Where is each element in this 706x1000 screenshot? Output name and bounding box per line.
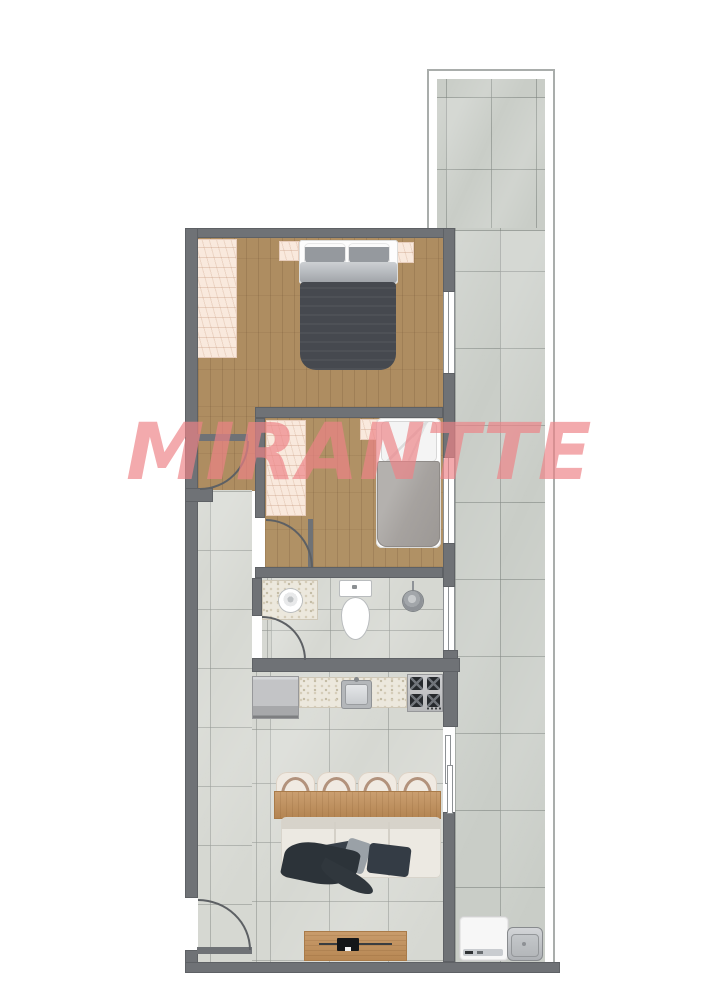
wall-bedroom2-bathroom <box>255 567 443 578</box>
wall-top <box>185 228 455 238</box>
stove-burner-1 <box>410 677 423 690</box>
double-bed-pillow-left <box>304 243 346 264</box>
kitchen-faucet <box>354 677 359 682</box>
sofa-pillow-dark-right <box>366 843 411 878</box>
balcony-sliding-door-panel-2 <box>447 765 453 814</box>
wall-bathroom-left <box>252 578 262 616</box>
double-bed-sheet-fold <box>300 262 397 283</box>
balcony-floor-top <box>437 79 545 228</box>
dining-table <box>274 791 441 819</box>
balcony-floor-main <box>455 228 545 962</box>
dining-chair-1 <box>276 772 315 793</box>
stove-knobs <box>426 707 441 710</box>
bedroom1-nightstand-left <box>279 241 299 261</box>
tv-base-dot <box>345 947 351 951</box>
dining-chair-3 <box>358 772 397 793</box>
dining-chair-4 <box>398 772 437 793</box>
laundry-tank-drain <box>522 942 526 946</box>
bedroom1-window <box>443 292 455 373</box>
floor-plan: MIRANTTE <box>0 0 706 1000</box>
stove-burner-4 <box>427 694 440 707</box>
toilet-flush-button <box>352 585 357 589</box>
stove-burner-2 <box>427 677 440 690</box>
kitchen-sink-bowl <box>346 685 367 704</box>
wall-kitchen-top <box>252 658 460 672</box>
washing-machine-control-panel <box>463 949 503 956</box>
wall-left-upper <box>185 228 198 898</box>
bathroom-window <box>443 587 455 650</box>
balcony-outline-left <box>427 69 429 230</box>
bathroom-sink-basin <box>279 589 302 612</box>
wall-bottom <box>185 962 560 973</box>
wall-right-seg3 <box>443 543 455 587</box>
wall-right-seg1 <box>443 228 455 292</box>
bedroom1-wardrobe <box>197 239 237 358</box>
balcony-outline-right <box>553 69 555 964</box>
fridge <box>252 676 299 719</box>
dining-chair-2 <box>317 772 356 793</box>
wall-right-living <box>443 812 455 962</box>
stove-burner-3 <box>410 694 423 707</box>
double-bed-duvet <box>300 282 396 370</box>
watermark-text: MIRANTTE <box>126 408 592 498</box>
shower-head <box>403 591 423 611</box>
balcony-outline-top <box>427 69 555 71</box>
double-bed-pillow-right <box>348 243 390 264</box>
hallway-floor <box>198 490 252 962</box>
